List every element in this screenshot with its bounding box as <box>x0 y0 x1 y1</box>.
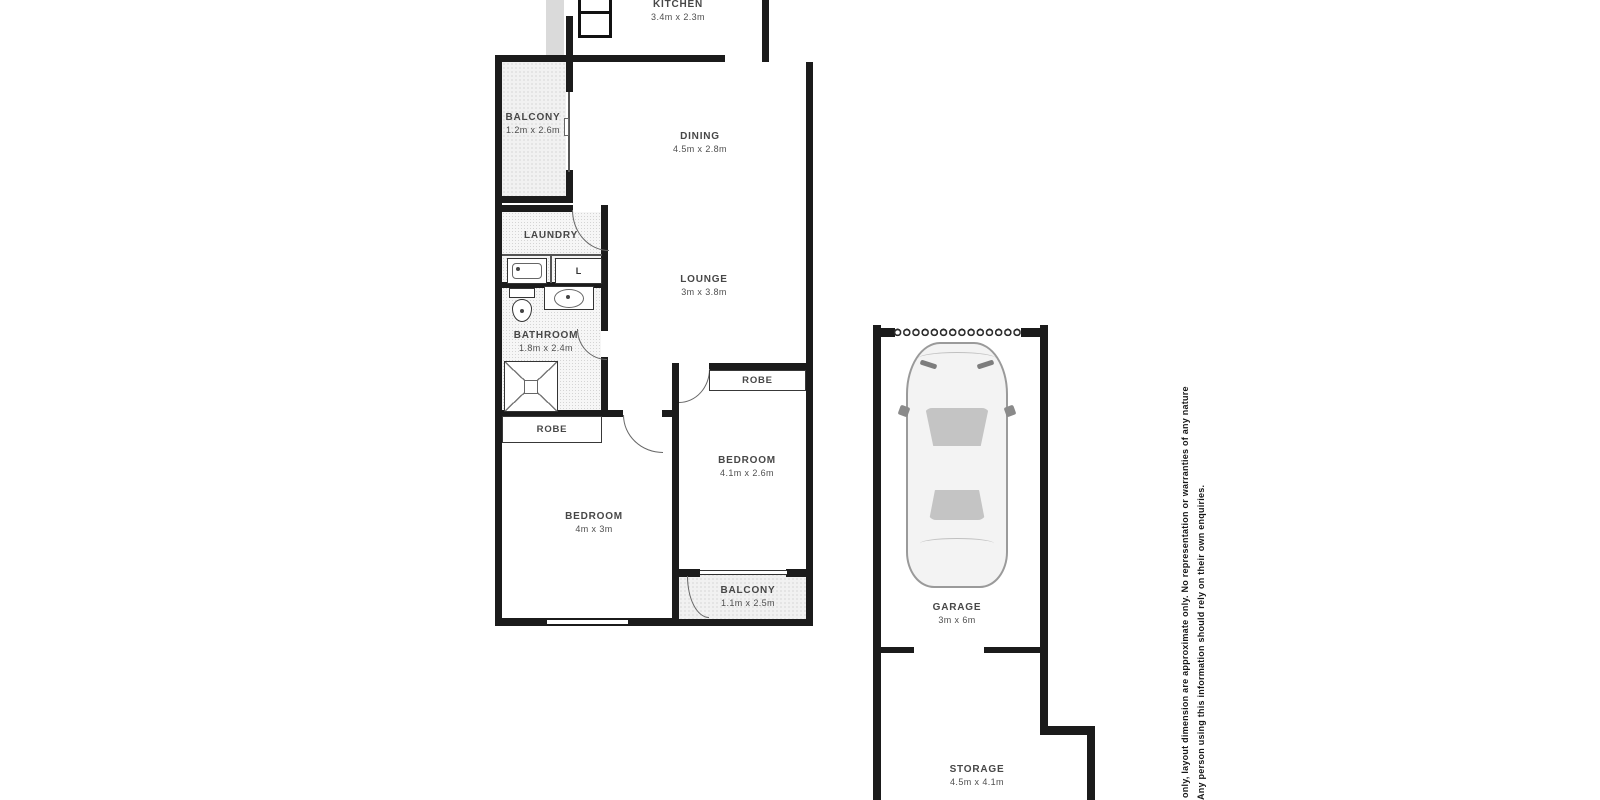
car-mirror-right <box>1004 405 1017 418</box>
washing-machine: L <box>555 258 602 284</box>
laundry-tub <box>507 258 547 284</box>
toilet-cistern <box>509 288 535 298</box>
room-label-kitchen: KITCHEN 3.4m x 2.3m <box>651 0 705 23</box>
room-label-bedroom-left: BEDROOM 4m x 3m <box>565 511 623 535</box>
room-label-dining: DINING 4.5m x 2.8m <box>673 131 727 155</box>
shower-drain <box>524 380 538 394</box>
wall-bedroom-left-bottom-a <box>495 618 547 626</box>
wall-balcony-slider-stub <box>566 170 573 203</box>
wall-storage-step-vertical <box>1087 726 1095 800</box>
wall-bedroom-right-top <box>709 363 813 370</box>
wall-balcony-top-bottom <box>495 196 573 203</box>
room-label-balcony-top: BALCONY 1.2m x 2.6m <box>505 112 560 136</box>
laundry-tub-faucet <box>516 267 520 271</box>
bedroom-right-door-arc <box>679 369 710 403</box>
room-label-bathroom: BATHROOM 1.8m x 2.4m <box>514 330 579 354</box>
garage-roller-door <box>893 327 1022 338</box>
floor-plan-canvas: L ROBE ROBE KITCHEN 3.4m <box>0 0 1600 800</box>
disclaimer-line-1: e only, layout dimension are approximate… <box>1180 386 1190 800</box>
room-label-laundry: LAUNDRY <box>524 230 578 242</box>
robe-left-label: ROBE <box>537 424 568 436</box>
robe-right-box: ROBE <box>709 370 806 391</box>
room-label-storage: STORAGE 4.5m x 4.1m <box>950 764 1005 788</box>
wall-kitchen-left <box>566 16 573 92</box>
robe-left-box: ROBE <box>502 416 602 443</box>
room-label-balcony-bottom: BALCONY 1.1m x 2.5m <box>720 585 775 609</box>
wall-wet-right-lower <box>601 357 608 413</box>
wall-top-horizontal <box>495 55 725 62</box>
vanity <box>544 286 594 310</box>
car-rear-window <box>928 490 986 520</box>
disclaimer-line-2: Any person using this information should… <box>1196 485 1206 800</box>
wall-unit-left <box>495 55 502 626</box>
wall-garage-interior-left-stub <box>881 647 914 653</box>
wall-balcony-bottom-outer <box>672 619 813 626</box>
tub-washer-divider <box>550 256 552 283</box>
car-windshield <box>924 408 990 446</box>
shower <box>504 361 558 412</box>
laundry-tub-basin <box>512 263 542 279</box>
toilet-drain <box>520 309 524 313</box>
vanity-faucet <box>566 295 570 299</box>
room-label-garage: GARAGE 3m x 6m <box>933 602 982 626</box>
window-bedroom-right-slider <box>700 570 787 575</box>
wall-mid-vertical <box>672 363 679 619</box>
bedroom-left-door-arc <box>623 415 663 453</box>
window-bedroom-left <box>547 618 628 626</box>
wall-bedroom-left-bottom-b <box>628 618 679 626</box>
car-icon <box>906 342 1008 588</box>
wall-garage-right <box>1040 325 1048 735</box>
sliding-door-leaf <box>564 118 569 136</box>
wall-laundry-top <box>495 205 573 212</box>
car-rear-deck-line <box>920 538 994 549</box>
room-label-bedroom-right: BEDROOM 4.1m x 2.6m <box>718 455 776 479</box>
wall-garage-left <box>873 325 881 800</box>
car-body <box>906 342 1008 588</box>
wall-unit-right <box>806 62 813 626</box>
kitchen-appliance <box>578 0 612 38</box>
robe-right-label: ROBE <box>742 375 773 387</box>
wall-bedroom-right-bottom-right <box>786 569 813 577</box>
room-label-lounge: LOUNGE 3m x 3.8m <box>680 274 728 298</box>
cutoff-structure-strip <box>546 0 564 55</box>
wall-kitchen-right <box>762 0 769 62</box>
laundry-divider-line <box>502 254 602 256</box>
wall-garage-top-left-stub <box>873 328 895 337</box>
kitchen-appliance-divider <box>581 11 609 14</box>
wall-garage-interior-right-stub <box>984 647 1040 653</box>
washing-machine-label: L <box>576 266 582 276</box>
